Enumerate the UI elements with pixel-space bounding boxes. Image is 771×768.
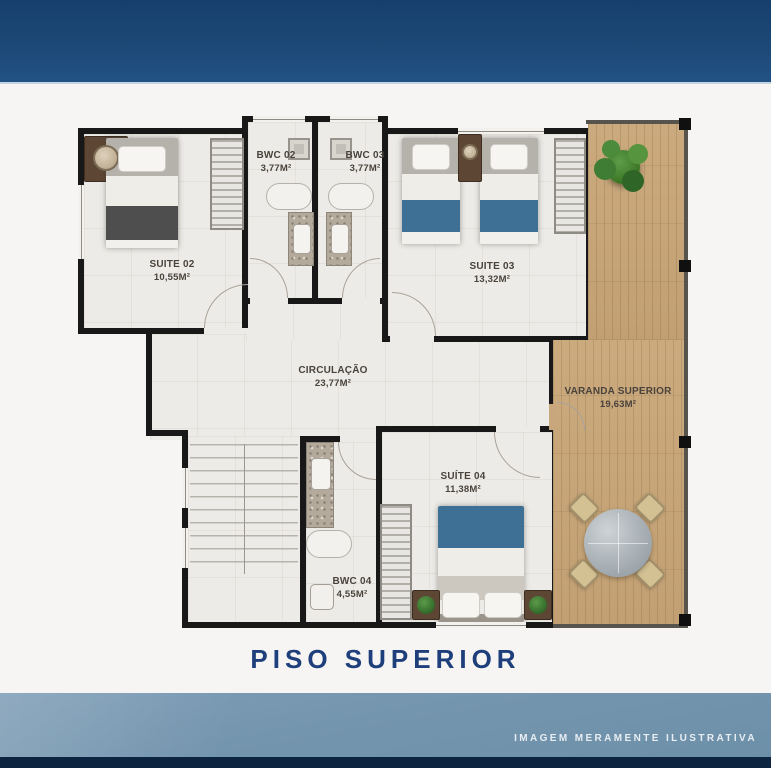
room-area: 23,77M² bbox=[278, 378, 388, 391]
table-lamp bbox=[462, 144, 478, 160]
wall-post bbox=[679, 260, 691, 272]
room-area: 11,38M² bbox=[408, 484, 518, 497]
varanda-wall-bottom bbox=[553, 624, 688, 628]
room-name: SUITE 03 bbox=[437, 261, 547, 274]
varanda-wall-top bbox=[586, 120, 688, 124]
window bbox=[458, 128, 544, 134]
bathtub bbox=[328, 183, 374, 210]
door-bwc03 bbox=[342, 298, 380, 304]
wall-post bbox=[679, 118, 691, 130]
window bbox=[182, 528, 188, 568]
wardrobe bbox=[380, 504, 412, 620]
vanity-sink bbox=[331, 224, 349, 254]
window bbox=[78, 185, 84, 259]
room-label-bwc03: BWC 03 3,77M² bbox=[330, 150, 400, 175]
vanity-sink bbox=[311, 458, 331, 490]
room-area: 10,55M² bbox=[117, 272, 227, 285]
round-table bbox=[584, 509, 652, 577]
room-name: SUITE 02 bbox=[117, 259, 227, 272]
room-label-bwc02: BWC 02 3,77M² bbox=[241, 150, 311, 175]
room-name: BWC 02 bbox=[241, 150, 311, 163]
room-name: CIRCULAÇÃO bbox=[278, 365, 388, 378]
room-name: BWC 04 bbox=[320, 576, 384, 589]
room-area: 3,77M² bbox=[330, 163, 400, 176]
wall-post bbox=[679, 436, 691, 448]
varanda-wall-right bbox=[684, 120, 688, 628]
table-lamp bbox=[93, 145, 119, 171]
wardrobe bbox=[210, 138, 244, 230]
window bbox=[253, 116, 305, 122]
pillow bbox=[490, 144, 528, 170]
room-area: 13,32M² bbox=[437, 274, 547, 287]
pillow bbox=[412, 144, 450, 170]
door-bwc02 bbox=[250, 298, 288, 304]
room-name: BWC 03 bbox=[330, 150, 400, 163]
room-label-suite04: SUÍTE 04 11,38M² bbox=[408, 471, 518, 496]
door-suite02 bbox=[204, 328, 248, 334]
wardrobe bbox=[554, 138, 586, 234]
pillow bbox=[118, 146, 166, 172]
potted-plant bbox=[594, 140, 652, 198]
pillow bbox=[442, 592, 480, 618]
wall-circulacao-left bbox=[146, 330, 152, 436]
room-label-suite02: SUITE 02 10,55M² bbox=[117, 259, 227, 284]
potted-plant bbox=[417, 596, 435, 614]
window bbox=[182, 468, 188, 508]
door-suite03 bbox=[390, 336, 434, 342]
floor-plan: SUITE 02 10,55M² BWC 02 3,77M² BWC 03 3,… bbox=[0, 0, 771, 768]
pillow bbox=[484, 592, 522, 618]
room-label-varanda: VARANDA SUPERIOR 19,63M² bbox=[556, 386, 680, 411]
potted-plant bbox=[529, 596, 547, 614]
room-label-circulacao: CIRCULAÇÃO 23,77M² bbox=[278, 365, 388, 390]
room-name: VARANDA SUPERIOR bbox=[556, 386, 680, 399]
vanity-sink bbox=[293, 224, 311, 254]
window bbox=[436, 622, 526, 628]
room-label-suite03: SUITE 03 13,32M² bbox=[437, 261, 547, 286]
room-label-bwc04: BWC 04 4,55M² bbox=[320, 576, 384, 601]
staircase bbox=[190, 444, 298, 574]
room-name: SUÍTE 04 bbox=[408, 471, 518, 484]
wall-circulacao-step bbox=[146, 430, 188, 436]
wall-post bbox=[679, 614, 691, 626]
room-area: 4,55M² bbox=[320, 589, 384, 602]
bathtub bbox=[306, 530, 352, 558]
room-circulacao-floor-upper bbox=[246, 300, 382, 340]
room-area: 3,77M² bbox=[241, 163, 311, 176]
window bbox=[330, 116, 378, 122]
room-area: 19,63M² bbox=[556, 399, 680, 412]
varanda-deck-lower bbox=[553, 340, 688, 628]
bathtub bbox=[266, 183, 312, 210]
